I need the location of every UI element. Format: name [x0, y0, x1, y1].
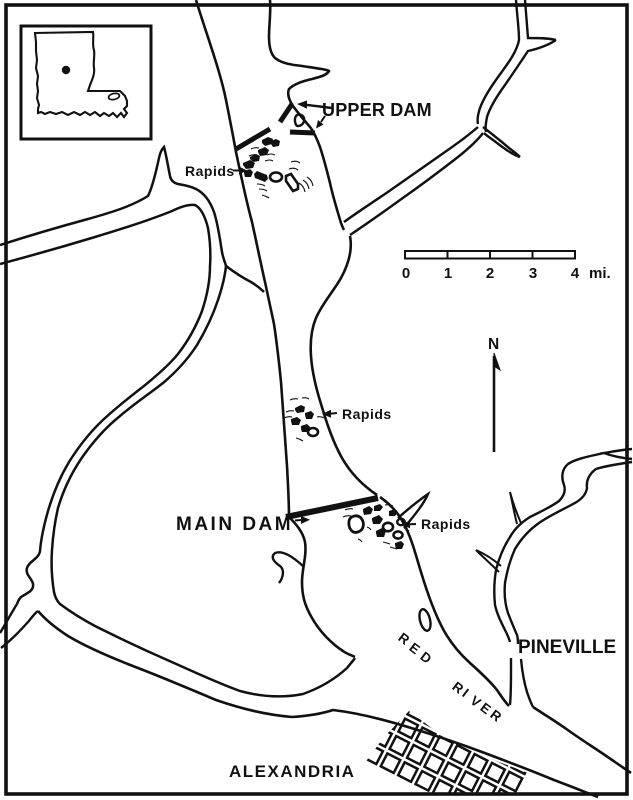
- svg-text:mi.: mi.: [589, 265, 611, 282]
- svg-text:3: 3: [529, 265, 537, 282]
- svg-text:Rapids: Rapids: [185, 163, 235, 179]
- svg-text:4: 4: [571, 265, 580, 282]
- svg-text:0: 0: [402, 265, 410, 282]
- svg-text:1: 1: [444, 265, 452, 282]
- svg-text:N: N: [488, 336, 499, 353]
- svg-text:2: 2: [486, 265, 494, 282]
- svg-text:MAIN DAM: MAIN DAM: [176, 514, 293, 535]
- svg-text:Rapids: Rapids: [421, 516, 471, 532]
- svg-text:ALEXANDRIA: ALEXANDRIA: [229, 762, 355, 781]
- svg-text:PINEVILLE: PINEVILLE: [518, 637, 616, 658]
- svg-text:Rapids: Rapids: [342, 406, 392, 422]
- svg-text:UPPER DAM: UPPER DAM: [322, 100, 432, 120]
